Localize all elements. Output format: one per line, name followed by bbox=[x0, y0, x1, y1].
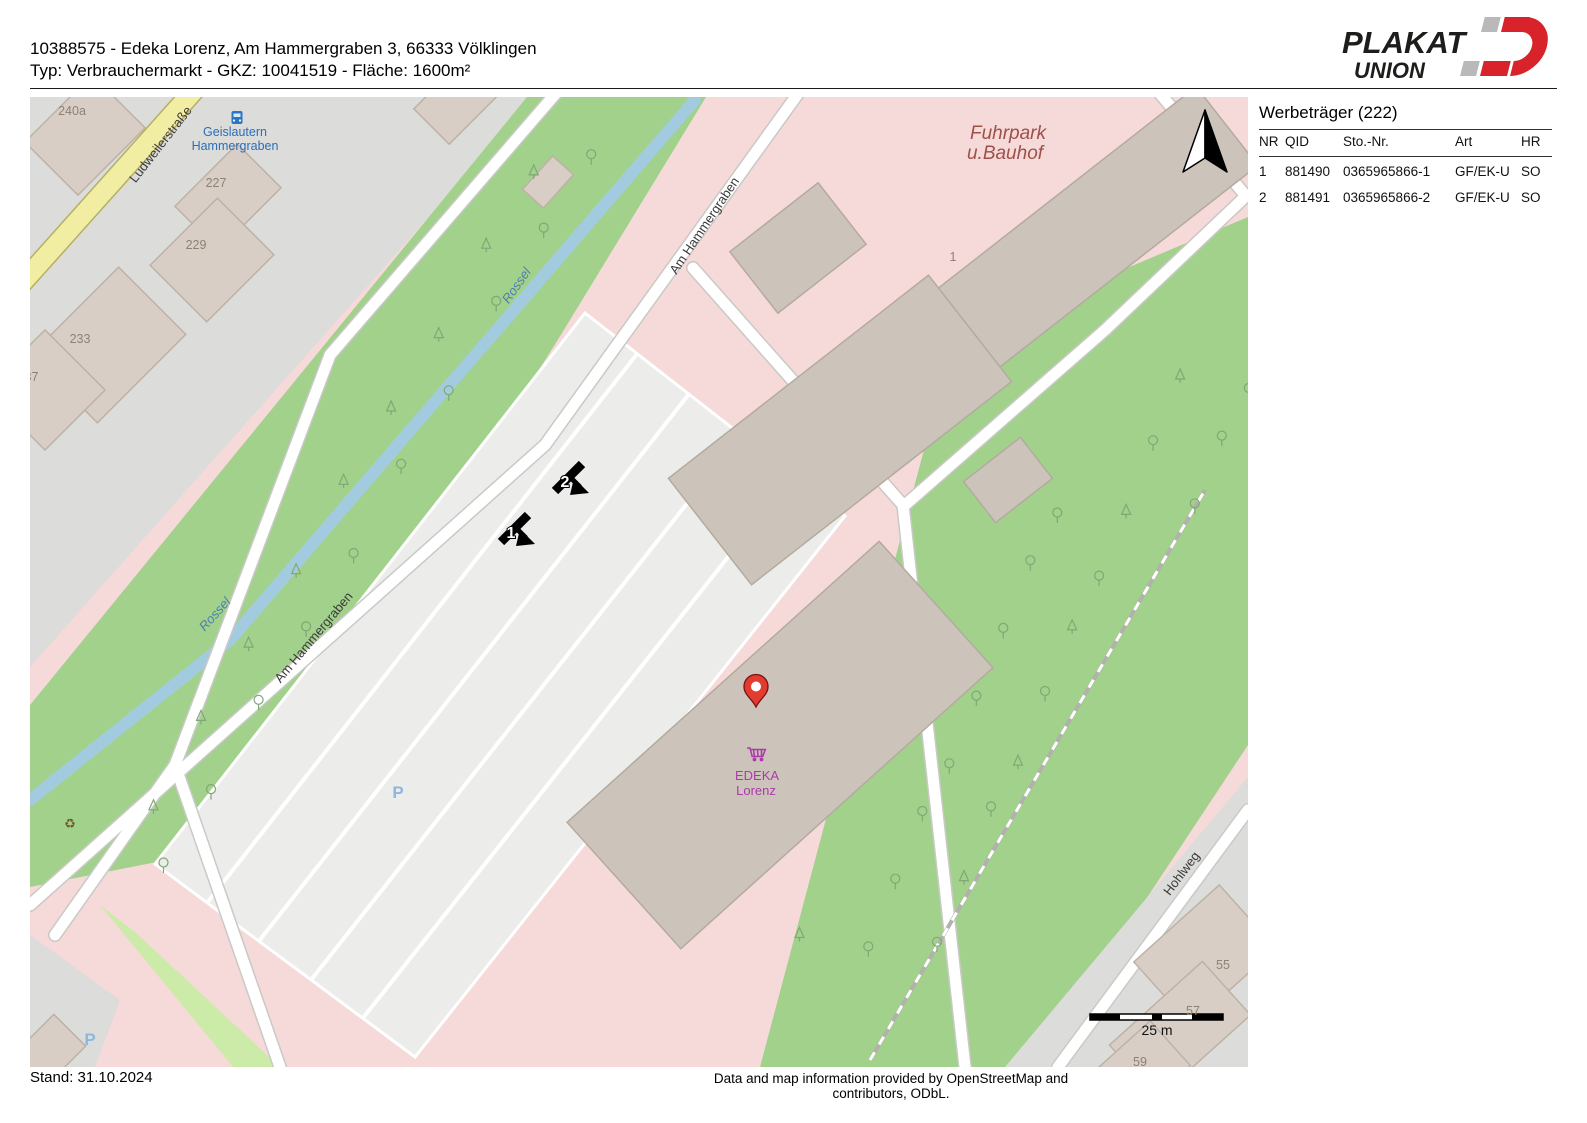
cell-nr: 2 bbox=[1259, 190, 1285, 205]
house-number: 240a bbox=[58, 104, 86, 118]
table-row: 1 881490 0365965866-1 GF/EK-U SO bbox=[1259, 164, 1559, 179]
house-number: 227 bbox=[206, 176, 227, 190]
panel-divider-top bbox=[1259, 129, 1552, 130]
cell-art: GF/EK-U bbox=[1455, 164, 1521, 179]
cell-stonr: 0365965866-1 bbox=[1343, 164, 1455, 179]
cell-nr: 1 bbox=[1259, 164, 1285, 179]
page-title: 10388575 - Edeka Lorenz, Am Hammergraben… bbox=[30, 39, 537, 59]
map-label-place-fuhrpark-line2: u.Bauhof bbox=[967, 143, 1045, 164]
map-label-shop-edeka-line2: Lorenz bbox=[736, 783, 776, 798]
table-header-row: NR QID Sto.-Nr. Art HR bbox=[1259, 134, 1559, 149]
billboard-number: 1 bbox=[507, 525, 516, 542]
col-header-hr: HR bbox=[1521, 134, 1559, 149]
logo-text-union: UNION bbox=[1354, 58, 1426, 83]
panel-divider-header bbox=[1259, 156, 1552, 157]
cell-stonr: 0365965866-2 bbox=[1343, 190, 1455, 205]
scale-bar-label: 25 m bbox=[1141, 1022, 1172, 1038]
map-label-shop-edeka-line1: EDEKA bbox=[735, 768, 779, 783]
status-date: Stand: 31.10.2024 bbox=[30, 1069, 153, 1086]
col-header-qid: QID bbox=[1285, 134, 1343, 149]
page-subtitle: Typ: Verbrauchermarkt - GKZ: 10041519 - … bbox=[30, 61, 470, 81]
house-number: 229 bbox=[186, 238, 207, 252]
bus-stop-icon bbox=[232, 111, 243, 124]
werbetraeger-panel: Werbeträger (222) NR QID Sto.-Nr. Art HR… bbox=[1248, 97, 1587, 1067]
map-label-recycling: ♻ bbox=[64, 816, 76, 831]
map-label-busstop-geislautern-line1: Geislautern bbox=[203, 125, 267, 139]
house-number: 233 bbox=[70, 332, 91, 346]
map-label-place-fuhrpark-line1: Fuhrpark bbox=[970, 123, 1048, 144]
map-label-parking-p-2: P bbox=[84, 1030, 95, 1049]
logo-red-bar-bottom bbox=[1480, 61, 1511, 76]
col-header-stonr: Sto.-Nr. bbox=[1343, 134, 1455, 149]
plakat-union-logo: PLAKAT UNION bbox=[1340, 12, 1552, 84]
cell-hr: SO bbox=[1521, 164, 1559, 179]
cell-qid: 881490 bbox=[1285, 164, 1343, 179]
panel-title: Werbeträger (222) bbox=[1259, 103, 1398, 123]
logo-text-plakat: PLAKAT bbox=[1342, 25, 1468, 60]
house-number: 57 bbox=[1186, 1004, 1200, 1018]
cell-qid: 881491 bbox=[1285, 190, 1343, 205]
map-label-parking-p-1: P bbox=[392, 783, 403, 802]
header-divider bbox=[30, 88, 1557, 89]
logo-gray-bar-top bbox=[1481, 17, 1501, 32]
col-header-nr: NR bbox=[1259, 134, 1285, 149]
cell-art: GF/EK-U bbox=[1455, 190, 1521, 205]
house-number: 55 bbox=[1216, 958, 1230, 972]
billboard-number: 2 bbox=[561, 474, 570, 491]
logo-gray-bar-bottom bbox=[1460, 61, 1480, 76]
house-number: 59 bbox=[1133, 1055, 1147, 1067]
osm-attribution: Data and map information provided by Ope… bbox=[676, 1071, 1106, 1101]
cell-hr: SO bbox=[1521, 190, 1559, 205]
col-header-art: Art bbox=[1455, 134, 1521, 149]
map-canvas[interactable]: 25 m 12 LudweilerstraßeAm HammergrabenAm… bbox=[30, 97, 1248, 1067]
report-page: 10388575 - Edeka Lorenz, Am Hammergraben… bbox=[0, 0, 1587, 1123]
house-number: 1 bbox=[950, 250, 957, 264]
map-label-busstop-geislautern-line2: Hammergraben bbox=[192, 139, 279, 153]
table-row: 2 881491 0365965866-2 GF/EK-U SO bbox=[1259, 190, 1559, 205]
house-number: 237 bbox=[30, 370, 38, 384]
